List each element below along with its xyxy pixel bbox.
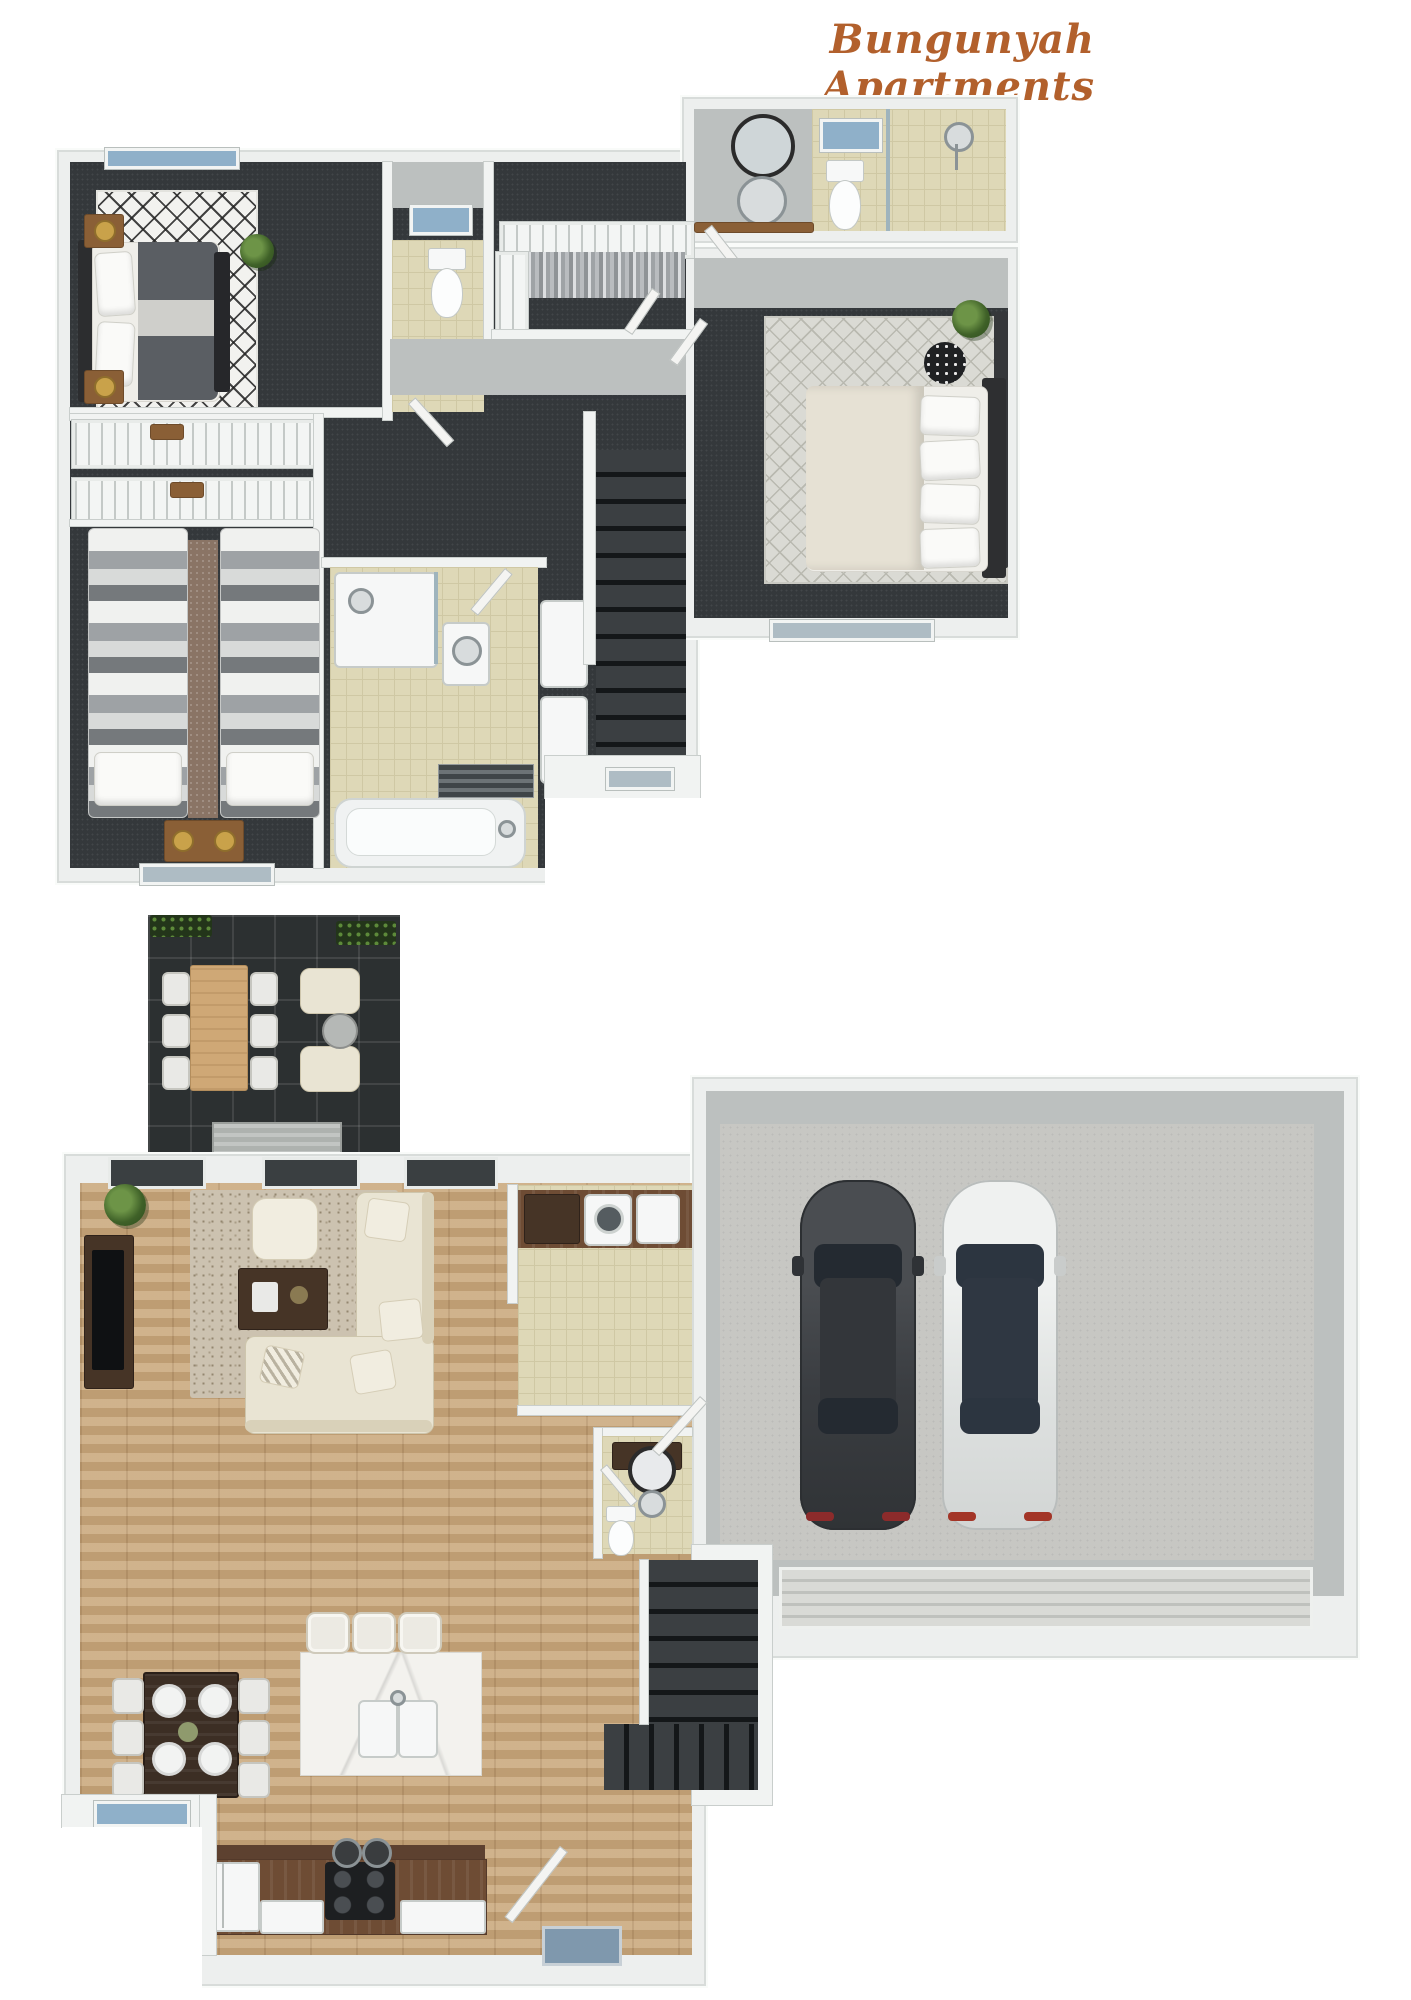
sofa-back	[422, 1192, 434, 1344]
robe-south-wall	[492, 330, 700, 339]
bathtub-inner	[346, 808, 496, 856]
car-mirror-icon	[1054, 1256, 1066, 1276]
wardrobe-drawers	[150, 424, 184, 440]
dining-chair	[112, 1762, 144, 1798]
bed-pillow	[919, 483, 980, 525]
potted-plant-icon	[240, 234, 274, 268]
dinner-plate-icon	[198, 1742, 232, 1776]
car-taillight-icon	[882, 1512, 910, 1521]
laundry-west-wall	[508, 1185, 517, 1303]
dining-window	[94, 1801, 190, 1827]
toilet-icon	[826, 160, 864, 182]
toilet-icon	[431, 268, 463, 318]
car-rear-window	[960, 1398, 1040, 1434]
bar-stool	[306, 1612, 350, 1654]
sofa-cushion	[258, 1344, 305, 1389]
cabinet-front	[400, 1900, 486, 1934]
planter-box-icon	[336, 921, 396, 945]
car-mirror-icon	[792, 1256, 804, 1276]
fridge-door-split	[222, 1862, 224, 1928]
vanity-mirror-icon	[731, 114, 795, 178]
outdoor-chair	[250, 972, 278, 1006]
shower-head-icon	[944, 122, 974, 152]
bar-stool	[352, 1612, 396, 1654]
robe-shoe-rack	[496, 252, 528, 336]
upper-bulkhead	[390, 339, 686, 395]
cabinet-front	[260, 1900, 324, 1934]
table-lamp-icon	[214, 830, 236, 852]
coffee-table-decor-icon	[252, 1282, 278, 1312]
outdoor-chair	[162, 972, 190, 1006]
page-title: Bungunyah Apartments	[690, 16, 1095, 72]
kitchen-sink	[398, 1700, 438, 1758]
car-mirror-icon	[934, 1256, 946, 1276]
bedroom2-duvet	[806, 386, 924, 570]
garage-door	[782, 1570, 1310, 1626]
bed-pillow	[919, 438, 981, 481]
bedroom2-wall-face	[694, 258, 1008, 308]
dinner-plate-icon	[152, 1742, 186, 1776]
stair-rail	[584, 412, 595, 664]
car-taillight-icon	[948, 1512, 976, 1521]
outdoor-chair	[162, 1056, 190, 1090]
floorplan-image: Bungunyah Apartments	[0, 0, 1411, 2000]
powder-west-wall	[594, 1428, 602, 1558]
bed-pillow	[226, 752, 314, 806]
dining-chair	[112, 1720, 144, 1756]
bed-pillow	[94, 752, 182, 806]
shower-head-icon	[348, 588, 374, 614]
plan-cutout	[62, 1827, 202, 1988]
wc-east-wall	[484, 162, 493, 340]
lounge-chair	[300, 1046, 360, 1092]
tub-faucet-icon	[498, 820, 516, 838]
ensuite-skylight	[820, 119, 882, 152]
vanity-basin-icon	[737, 176, 787, 226]
bath2-north-wall	[322, 558, 546, 567]
laundry-cabinet	[524, 1194, 580, 1244]
car-taillight-icon	[806, 1512, 834, 1521]
outdoor-chair	[250, 1014, 278, 1048]
plan-cutout	[545, 798, 701, 886]
cooking-pot-icon	[332, 1838, 362, 1868]
car-roof	[820, 1278, 896, 1408]
wardrobe-drawers	[170, 482, 204, 498]
entry-mat	[542, 1926, 622, 1966]
planter-box-icon	[150, 915, 212, 937]
stair-rail	[640, 1560, 648, 1724]
floor-pouf	[252, 1198, 318, 1260]
basin-bowl-icon	[452, 636, 482, 666]
wc-skylight	[410, 205, 472, 235]
sink-faucet-icon	[390, 1690, 406, 1706]
shower-tray	[334, 572, 438, 668]
car-rear-window	[818, 1398, 898, 1434]
toilet-icon	[428, 248, 466, 270]
sofa-back	[245, 1420, 432, 1432]
car-roof	[962, 1278, 1038, 1408]
car-mirror-icon	[912, 1256, 924, 1276]
staircase-lower-turn	[604, 1724, 758, 1790]
bedroom2-window	[770, 620, 934, 641]
table-lamp-icon	[94, 220, 116, 242]
wc-wall-face	[392, 162, 484, 208]
towel-rack-icon	[438, 764, 534, 798]
sofa-cushion	[363, 1197, 410, 1242]
washer-door-icon	[594, 1204, 624, 1234]
toilet-icon	[608, 1520, 634, 1556]
bar-stool	[398, 1612, 442, 1654]
bed-pillow	[919, 527, 980, 569]
bedside-table-icon	[924, 342, 966, 384]
staircase-upper	[596, 450, 686, 756]
toilet-icon	[829, 180, 861, 230]
laundry-sink	[636, 1194, 680, 1244]
dining-chair	[238, 1678, 270, 1714]
bedroom3-window	[140, 864, 274, 885]
shower-arm-icon	[955, 144, 958, 170]
dining-chair	[238, 1762, 270, 1798]
shower-glass	[434, 572, 438, 664]
table-centerpiece-icon	[178, 1722, 198, 1742]
sofa-cushion	[349, 1349, 397, 1396]
staircase-lower	[648, 1560, 758, 1724]
patio-sliding-door	[262, 1157, 360, 1189]
bedroom3-runner-rug	[188, 540, 218, 818]
kitchen-sink	[358, 1700, 398, 1758]
powder-basin-icon	[638, 1490, 666, 1518]
patio-side-table-icon	[322, 1013, 358, 1049]
outdoor-chair	[162, 1014, 190, 1048]
laundry-south-wall	[518, 1406, 692, 1415]
coffee-table-decor-icon	[290, 1286, 308, 1304]
cooking-pot-icon	[362, 1838, 392, 1868]
car-taillight-icon	[1024, 1512, 1052, 1521]
patio-sliding-door	[404, 1157, 498, 1189]
master-throw-blanket	[138, 300, 218, 336]
hall-wardrobe	[72, 420, 318, 468]
master-pillow	[94, 251, 136, 317]
closet-wall	[70, 520, 318, 526]
sofa-cushion	[378, 1298, 424, 1342]
tv-icon	[92, 1250, 124, 1370]
stair-window	[606, 768, 674, 790]
table-lamp-icon	[172, 830, 194, 852]
lounge-chair	[300, 968, 360, 1014]
bed-pillow	[919, 395, 980, 437]
notch-wall	[200, 1795, 216, 1955]
potted-plant-icon	[952, 300, 990, 338]
master-bed-bench	[214, 252, 230, 392]
cooktop	[325, 1862, 395, 1920]
powder-mirror-icon	[628, 1446, 676, 1494]
table-lamp-icon	[94, 376, 116, 398]
outdoor-chair	[250, 1056, 278, 1090]
dinner-plate-icon	[152, 1684, 186, 1718]
potted-plant-icon	[104, 1184, 146, 1226]
outdoor-dining-table	[190, 965, 248, 1091]
linen-shelf	[540, 600, 588, 688]
dinner-plate-icon	[198, 1684, 232, 1718]
dining-chair	[238, 1720, 270, 1756]
master-window	[105, 148, 239, 169]
shower-glass	[886, 109, 890, 231]
dining-chair	[112, 1678, 144, 1714]
